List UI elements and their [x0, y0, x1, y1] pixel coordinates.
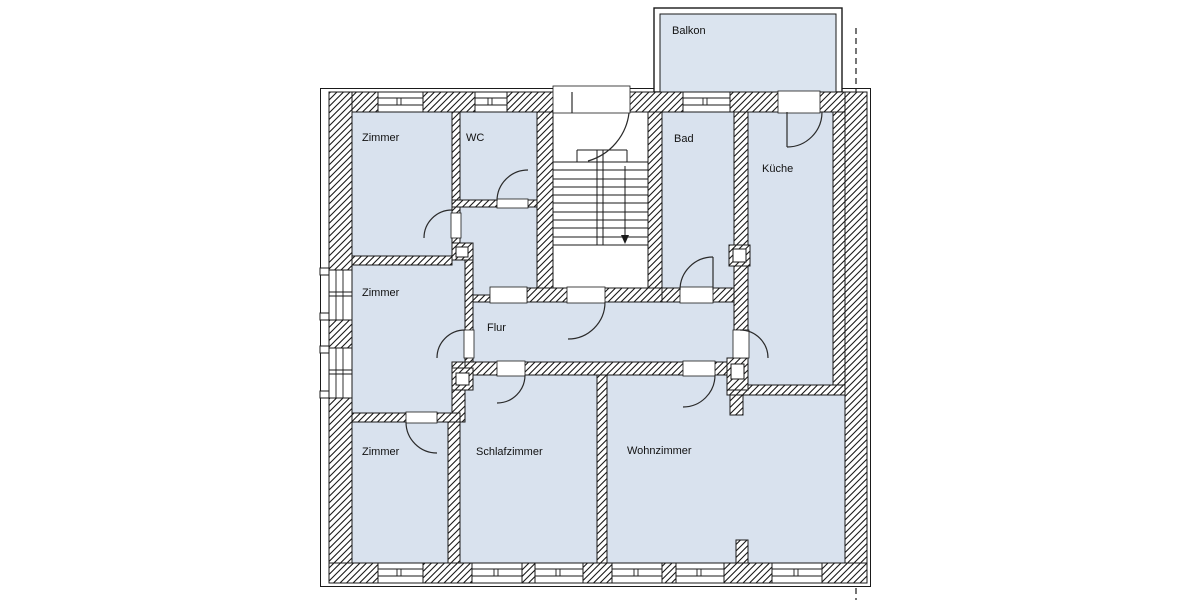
room-label-wohnzimmer: Wohnzimmer — [627, 445, 692, 457]
wall-stairwell-left — [537, 112, 553, 302]
opening-wc — [497, 199, 528, 208]
wall-left — [329, 92, 352, 583]
opening-vestibule-passage — [490, 287, 527, 303]
wall-zimmer-top-mid-divider — [352, 256, 452, 265]
stairwell-interior — [553, 112, 648, 288]
wall-schlaf-wohn-divider — [597, 375, 607, 563]
room-label-balkon: Balkon — [672, 25, 706, 37]
window-wohnzimmer-3 — [772, 563, 822, 583]
window-sill-cap — [320, 313, 329, 320]
room-label-zimmer-top-left: Zimmer — [362, 132, 400, 144]
opening-apartment-entry — [567, 287, 605, 303]
window-wohnzimmer-1 — [612, 563, 662, 583]
floor-plan-svg: Zimmer WC Bad Küche Zimmer Flur Zimmer S… — [0, 0, 1200, 600]
opening-balcony-door — [778, 91, 820, 113]
window-sill-cap — [320, 391, 329, 398]
window-zimmer-mid-2 — [329, 348, 352, 398]
window-zimmer-bottom — [378, 563, 423, 583]
balcony — [654, 8, 842, 92]
window-schlafzimmer-1 — [472, 563, 522, 583]
wall-bad-kueche-divider — [734, 112, 748, 330]
duct-a-shaft — [456, 247, 468, 257]
opening-building-entry — [553, 86, 630, 113]
room-label-zimmer-bottom-left: Zimmer — [362, 446, 400, 458]
duct-d-shaft — [731, 364, 744, 379]
wall-stub-wohnzimmer-bottom — [736, 540, 748, 563]
window-schlafzimmer-2 — [535, 563, 583, 583]
opening-zimmer-top-left — [451, 213, 461, 238]
window-zimmer-mid-1 — [329, 270, 352, 320]
wall-stub-wohnzimmer-top — [730, 395, 743, 415]
wall-right-inner-layer — [833, 112, 845, 390]
floor-plan-page: Zimmer WC Bad Küche Zimmer Flur Zimmer S… — [0, 0, 1200, 600]
opening-schlafzimmer — [497, 361, 525, 376]
room-label-flur: Flur — [487, 322, 506, 334]
room-label-wc: WC — [466, 132, 484, 144]
window-zimmer-top — [378, 92, 423, 112]
wall-right — [845, 92, 867, 583]
room-label-schlafzimmer: Schlafzimmer — [476, 446, 543, 458]
window-wohnzimmer-2 — [676, 563, 724, 583]
duct-b-shaft — [456, 373, 469, 385]
opening-zimmer-middle — [464, 330, 474, 358]
room-label-bad: Bad — [674, 133, 694, 145]
opening-wohnzimmer — [683, 361, 715, 376]
duct-c-shaft — [733, 249, 746, 262]
window-bad — [683, 92, 730, 112]
wall-zimmer-schlafzimmer-divider — [448, 422, 460, 563]
room-label-kueche: Küche — [762, 163, 793, 175]
opening-kueche — [733, 330, 749, 358]
window-sill-cap — [320, 346, 329, 353]
opening-bad — [680, 287, 713, 303]
opening-zimmer-bottom — [406, 412, 437, 423]
wall-stairwell-right — [648, 112, 662, 302]
room-label-zimmer-middle-left: Zimmer — [362, 287, 400, 299]
window-sill-cap — [320, 268, 329, 275]
wall-corridor-stub — [473, 295, 490, 302]
window-wc — [475, 92, 507, 112]
